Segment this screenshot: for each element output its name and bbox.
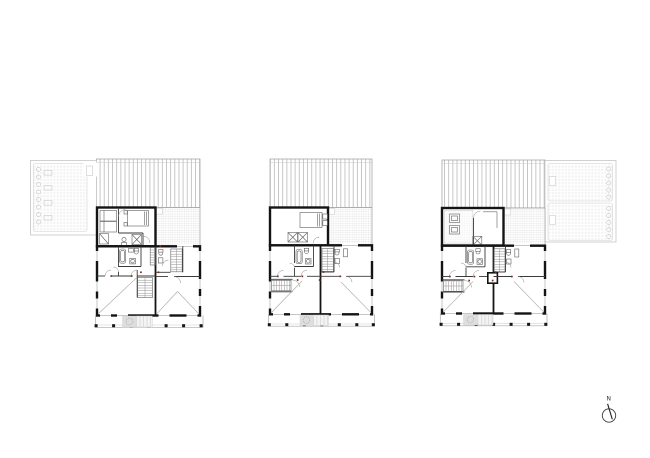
floor-plan-right (440, 160, 616, 326)
architectural-floor-plans: N (0, 0, 650, 458)
north-arrow-circle (602, 409, 615, 422)
floor-plan-middle (268, 159, 375, 326)
north-arrow-needle (608, 404, 613, 420)
north-label: N (607, 396, 612, 403)
drawing-sheet: N (0, 0, 650, 458)
north-arrow: N (602, 396, 615, 423)
floor-plan-left (31, 159, 204, 327)
